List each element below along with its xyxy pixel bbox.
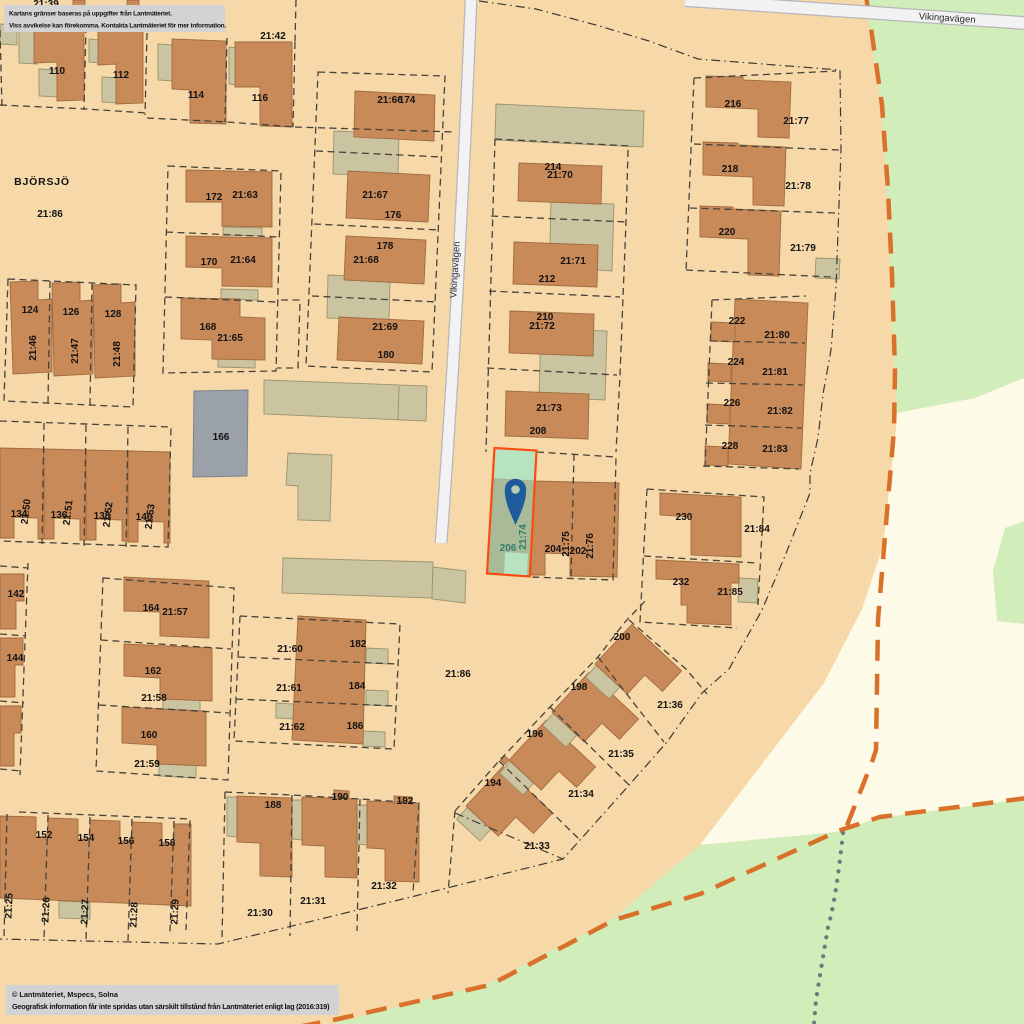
svg-text:21:36: 21:36 xyxy=(657,700,683,711)
svg-text:174: 174 xyxy=(399,95,416,106)
svg-text:156: 156 xyxy=(118,836,135,847)
svg-text:196: 196 xyxy=(527,729,544,740)
svg-text:212: 212 xyxy=(539,274,556,285)
svg-text:Geografisk information får int: Geografisk information får inte spridas … xyxy=(12,1002,330,1011)
svg-text:152: 152 xyxy=(36,830,53,841)
svg-text:190: 190 xyxy=(332,792,349,803)
svg-text:21:81: 21:81 xyxy=(762,367,788,378)
svg-text:21:69: 21:69 xyxy=(372,322,398,333)
svg-text:21:76: 21:76 xyxy=(585,533,596,559)
svg-text:216: 216 xyxy=(725,99,742,110)
svg-text:228: 228 xyxy=(722,441,739,452)
svg-text:226: 226 xyxy=(724,398,741,409)
svg-text:144: 144 xyxy=(7,653,24,664)
svg-text:184: 184 xyxy=(349,681,366,692)
svg-text:220: 220 xyxy=(719,227,736,238)
svg-text:164: 164 xyxy=(143,603,160,614)
svg-text:222: 222 xyxy=(729,316,746,327)
svg-text:198: 198 xyxy=(571,682,588,693)
svg-text:230: 230 xyxy=(676,512,693,523)
svg-text:21:85: 21:85 xyxy=(717,587,743,598)
svg-text:110: 110 xyxy=(49,66,66,77)
svg-text:21:72: 21:72 xyxy=(529,321,555,332)
svg-text:232: 232 xyxy=(673,577,690,588)
svg-text:21:58: 21:58 xyxy=(141,693,167,704)
svg-text:158: 158 xyxy=(159,838,176,849)
svg-text:21:47: 21:47 xyxy=(70,338,81,364)
svg-text:128: 128 xyxy=(105,309,122,320)
svg-text:21:35: 21:35 xyxy=(608,749,634,760)
svg-text:21:67: 21:67 xyxy=(362,190,388,201)
svg-text:218: 218 xyxy=(722,164,739,175)
svg-text:162: 162 xyxy=(145,666,162,677)
svg-text:21:77: 21:77 xyxy=(783,116,809,127)
svg-text:192: 192 xyxy=(397,796,414,807)
svg-text:21:31: 21:31 xyxy=(300,896,326,907)
svg-text:160: 160 xyxy=(141,730,158,741)
svg-text:21:42: 21:42 xyxy=(260,31,286,42)
svg-text:182: 182 xyxy=(350,639,367,650)
svg-text:21:61: 21:61 xyxy=(276,683,302,694)
svg-text:21:28: 21:28 xyxy=(128,901,140,928)
svg-text:21:34: 21:34 xyxy=(568,789,594,800)
svg-text:21:57: 21:57 xyxy=(162,607,188,618)
svg-text:188: 188 xyxy=(265,800,282,811)
svg-text:21:82: 21:82 xyxy=(767,406,793,417)
svg-text:21:60: 21:60 xyxy=(277,644,303,655)
svg-text:168: 168 xyxy=(200,322,217,333)
svg-text:21:71: 21:71 xyxy=(560,256,586,267)
svg-text:180: 180 xyxy=(378,350,395,361)
svg-text:© Lantmäteriet, Mspecs, Solna: © Lantmäteriet, Mspecs, Solna xyxy=(12,990,119,999)
svg-text:21:59: 21:59 xyxy=(134,759,160,770)
svg-text:200: 200 xyxy=(614,632,631,643)
svg-text:21:64: 21:64 xyxy=(230,255,256,266)
svg-text:194: 194 xyxy=(485,778,502,789)
svg-text:21:26: 21:26 xyxy=(40,896,52,923)
svg-text:21:78: 21:78 xyxy=(785,181,811,192)
svg-text:116: 116 xyxy=(252,93,269,104)
svg-text:172: 172 xyxy=(206,192,223,203)
svg-text:21:29: 21:29 xyxy=(169,898,181,925)
svg-text:21:46: 21:46 xyxy=(28,335,39,361)
svg-text:21:80: 21:80 xyxy=(764,330,790,341)
svg-text:21:86: 21:86 xyxy=(445,669,471,680)
svg-text:206: 206 xyxy=(500,543,517,554)
svg-text:154: 154 xyxy=(78,833,95,844)
svg-text:21:65: 21:65 xyxy=(217,333,243,344)
svg-text:112: 112 xyxy=(113,70,130,81)
svg-text:Kartans gränser baseras på upp: Kartans gränser baseras på uppgifter frå… xyxy=(9,10,172,18)
svg-text:21:79: 21:79 xyxy=(790,243,816,254)
svg-text:186: 186 xyxy=(347,721,364,732)
svg-text:21:48: 21:48 xyxy=(112,341,123,367)
svg-text:21:70: 21:70 xyxy=(547,170,573,181)
svg-text:142: 142 xyxy=(8,589,25,600)
svg-text:21:83: 21:83 xyxy=(762,444,788,455)
svg-text:21:74: 21:74 xyxy=(518,524,529,550)
svg-text:21:73: 21:73 xyxy=(536,403,562,414)
svg-text:176: 176 xyxy=(385,210,402,221)
svg-text:21:63: 21:63 xyxy=(232,190,258,201)
svg-text:21:32: 21:32 xyxy=(371,881,397,892)
svg-text:21:33: 21:33 xyxy=(524,841,550,852)
svg-text:Viss avvikelse kan förekomma.: Viss avvikelse kan förekomma. Kontakta L… xyxy=(9,23,226,30)
svg-text:21:30: 21:30 xyxy=(247,908,273,919)
svg-text:166: 166 xyxy=(213,432,230,443)
svg-text:21:86: 21:86 xyxy=(37,209,63,220)
svg-text:21:84: 21:84 xyxy=(744,524,770,535)
svg-text:21:25: 21:25 xyxy=(3,892,15,919)
svg-text:204: 204 xyxy=(545,544,562,555)
svg-text:208: 208 xyxy=(530,426,547,437)
svg-text:21:27: 21:27 xyxy=(79,898,91,925)
svg-text:124: 124 xyxy=(22,305,39,316)
svg-text:126: 126 xyxy=(63,307,80,318)
svg-text:224: 224 xyxy=(728,357,745,368)
svg-text:178: 178 xyxy=(377,241,394,252)
svg-text:21:68: 21:68 xyxy=(353,255,379,266)
svg-text:170: 170 xyxy=(201,257,218,268)
svg-text:BJÖRSJÖ: BJÖRSJÖ xyxy=(14,175,70,188)
svg-text:114: 114 xyxy=(188,90,205,101)
svg-text:21:62: 21:62 xyxy=(279,722,305,733)
